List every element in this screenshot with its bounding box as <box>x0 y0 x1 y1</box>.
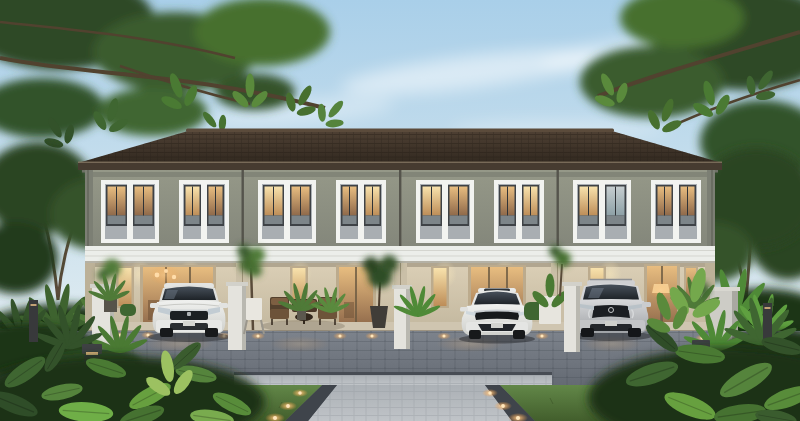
wheel <box>628 328 641 337</box>
white-planter <box>246 298 262 320</box>
curb <box>234 372 552 375</box>
window-bay-8 <box>651 180 701 243</box>
bollard-light-right-small <box>763 303 772 343</box>
window-bay-2 <box>179 180 229 243</box>
window-bay-3 <box>258 180 316 243</box>
dark-pot <box>370 306 388 328</box>
wheel <box>160 328 173 337</box>
window-bay-4 <box>336 180 386 243</box>
wheel <box>469 330 481 339</box>
wheel <box>205 328 218 337</box>
fascia <box>78 163 722 170</box>
wheel <box>581 328 594 337</box>
window-bay-5 <box>416 180 474 243</box>
grille <box>592 305 630 318</box>
windshield <box>474 292 520 305</box>
hip-roof <box>78 129 722 173</box>
cornice-band <box>85 246 715 264</box>
bollard-light-left-small <box>29 300 38 342</box>
townhouse-rendering <box>0 0 800 421</box>
window-bay-6 <box>494 180 544 243</box>
roof-ridge <box>186 129 614 133</box>
window-bay-1 <box>101 180 159 243</box>
wheel <box>513 330 525 339</box>
scene-rendering <box>0 0 800 421</box>
window-bay-7 <box>573 180 631 243</box>
